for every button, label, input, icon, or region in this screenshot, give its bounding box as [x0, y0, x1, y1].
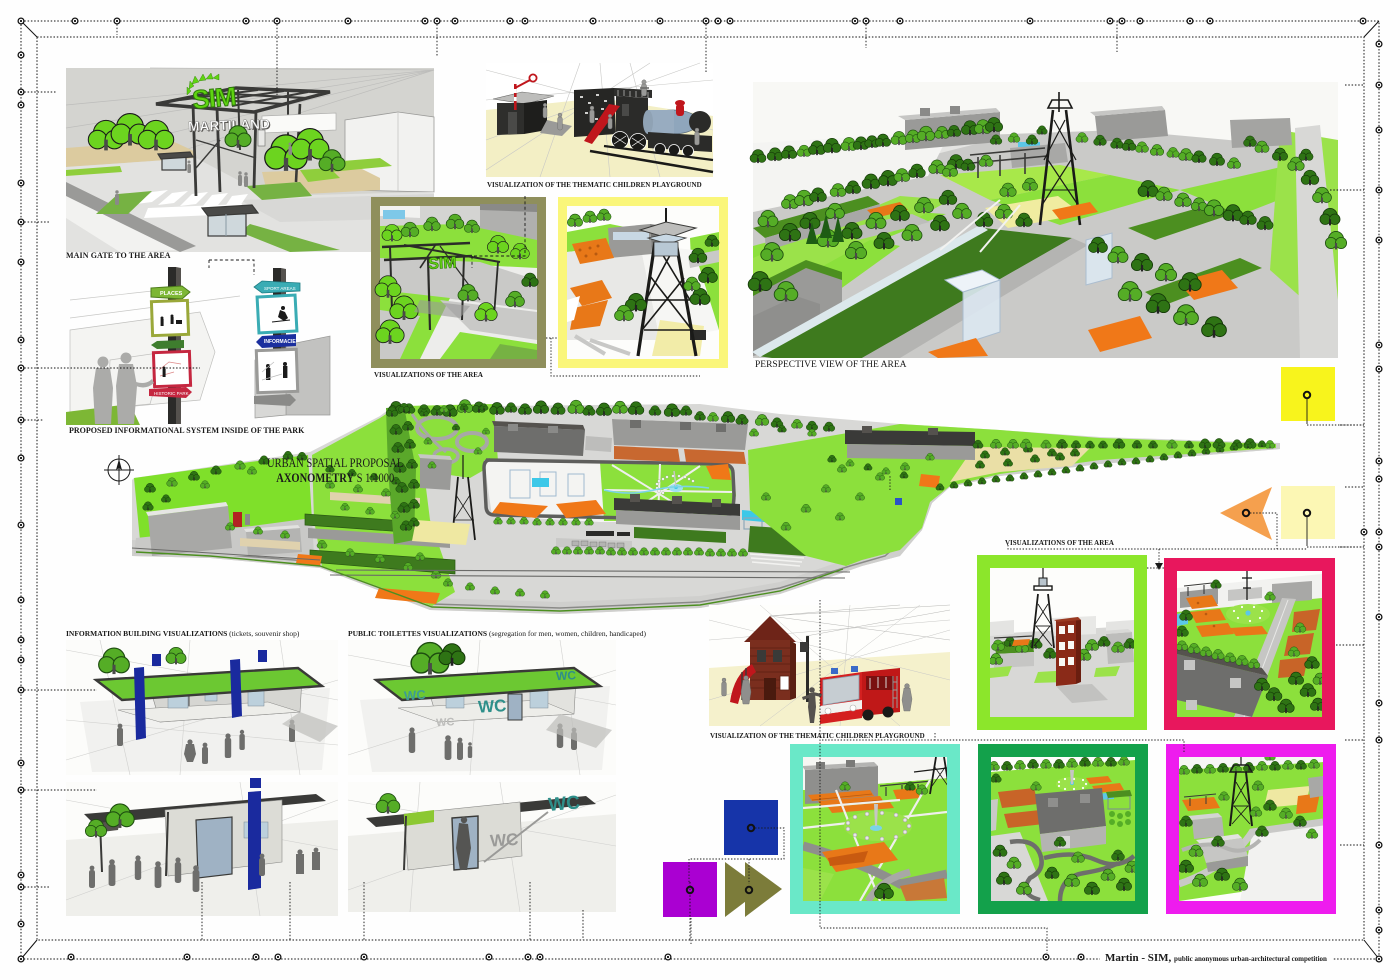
svg-text:WC: WC [404, 687, 427, 704]
svg-text:WC: WC [478, 696, 507, 716]
svg-text:SIM: SIM [428, 255, 457, 273]
svg-text:WC: WC [556, 668, 577, 683]
svg-text:PLACES: PLACES [160, 291, 183, 297]
svg-text:HISTORIC PARK: HISTORIC PARK [154, 391, 189, 396]
svg-text:INFORMACIE: INFORMACIE [264, 339, 296, 345]
svg-text:WC: WC [548, 792, 582, 816]
svg-text:SPORT AREAS: SPORT AREAS [264, 286, 296, 291]
svg-text:WC: WC [489, 830, 519, 851]
svg-text:SIM: SIM [191, 81, 237, 115]
svg-text:WC: WC [436, 716, 455, 729]
